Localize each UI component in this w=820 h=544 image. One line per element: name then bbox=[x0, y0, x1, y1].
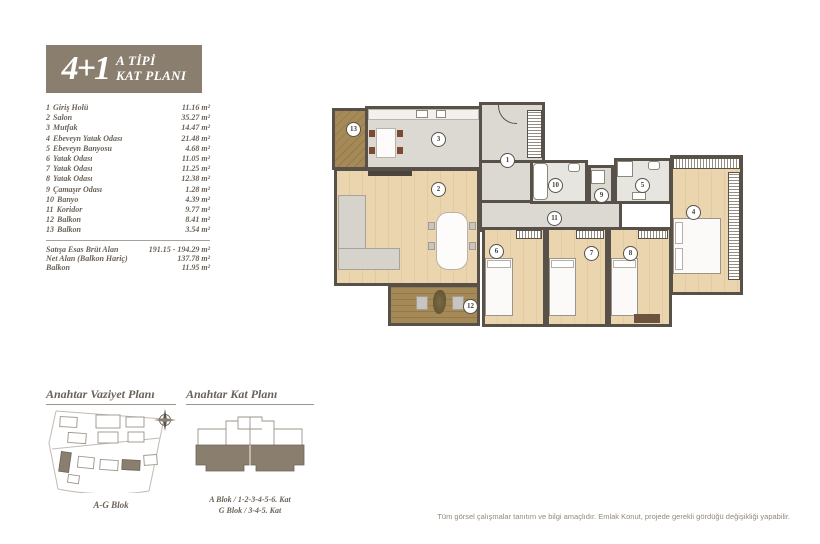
room-label: 13Balkon bbox=[46, 225, 81, 235]
room-area-list: 1Giriş Holü 11.16 m² 2Salon 35.27 m² 3Mu… bbox=[46, 103, 210, 273]
room-number-10: 10 bbox=[548, 178, 563, 193]
room-number-5: 5 bbox=[635, 178, 650, 193]
room-area: 1.28 m² bbox=[185, 185, 210, 195]
floor-plan-caption: A Blok / 1-2-3-4-5-6. Kat G Blok / 3-4-5… bbox=[186, 495, 314, 517]
room-list-row: 4Ebeveyn Yatak Odası 21.48 m² bbox=[46, 134, 210, 144]
room-number-7: 7 bbox=[584, 246, 599, 261]
pillow bbox=[613, 260, 636, 268]
kitchen-chair bbox=[369, 130, 375, 137]
room-area: 4.68 m² bbox=[185, 144, 210, 154]
pillow bbox=[487, 260, 511, 268]
room-area: 3.54 m² bbox=[185, 225, 210, 235]
highlight-block-g bbox=[122, 460, 140, 471]
room-label: 3Mutfak bbox=[46, 123, 77, 133]
floor-plan: 1 2 3 4 5 6 7 8 9 10 11 12 13 bbox=[332, 100, 746, 331]
room-list-row: 12Balkon 8.41 m² bbox=[46, 215, 210, 225]
room-number-2: 2 bbox=[431, 182, 446, 197]
room-label: 9Çamaşır Odası bbox=[46, 185, 102, 195]
plan-title-line2: KAT PLANI bbox=[116, 68, 186, 83]
master-closet-right bbox=[728, 172, 740, 280]
room-number-11: 11 bbox=[547, 211, 562, 226]
site-plan-sketch bbox=[46, 405, 176, 493]
room-list-row: 7Yatak Odası 11.25 m² bbox=[46, 164, 210, 174]
key-site-plan-title: Anahtar Vaziyet Planı bbox=[46, 388, 176, 405]
type-badge: 4+1 A TİPİ KAT PLANI bbox=[46, 45, 202, 93]
room-number-8: 8 bbox=[623, 246, 638, 261]
room-list-row: 1Giriş Holü 11.16 m² bbox=[46, 103, 210, 113]
room-area: 8.41 m² bbox=[185, 215, 210, 225]
room-label: 12Balkon bbox=[46, 215, 81, 225]
room-area: 12.38 m² bbox=[181, 174, 210, 184]
unit-count: 4+1 bbox=[62, 52, 109, 86]
kitchen-chair bbox=[397, 147, 403, 154]
room-area: 9.77 m² bbox=[185, 205, 210, 215]
sofa-chaise bbox=[338, 248, 400, 270]
room-list-row: 5Ebeveyn Banyosu 4.68 m² bbox=[46, 144, 210, 154]
room-number-13: 13 bbox=[346, 122, 361, 137]
area-summary: Satışa Esas Brüt Alan 191.15 - 194.29 m²… bbox=[46, 240, 210, 273]
dining-chair bbox=[469, 242, 476, 250]
balcony-13 bbox=[332, 108, 368, 170]
room-list-row: 10Banyo 4.39 m² bbox=[46, 195, 210, 205]
room-label: 5Ebeveyn Banyosu bbox=[46, 144, 112, 154]
building-footprint-sketch bbox=[190, 413, 310, 487]
room-list-row: 13Balkon 3.54 m² bbox=[46, 225, 210, 235]
summary-label: Net Alan (Balkon Hariç) bbox=[46, 254, 128, 263]
master-closet-top bbox=[673, 158, 740, 169]
room-number-1: 1 bbox=[500, 153, 515, 168]
room-area: 21.48 m² bbox=[181, 134, 210, 144]
summary-label: Balkon bbox=[46, 263, 70, 272]
summary-row: Balkon 11.95 m² bbox=[46, 263, 210, 272]
pillow bbox=[551, 260, 574, 268]
room-area: 35.27 m² bbox=[181, 113, 210, 123]
key-floor-plan: Anahtar Kat Planı A Blok / 1-2-3-4-5-6. … bbox=[186, 388, 314, 517]
room-area: 4.39 m² bbox=[185, 195, 210, 205]
room-label: 1Giriş Holü bbox=[46, 103, 88, 113]
room-list-row: 3Mutfak 14.47 m² bbox=[46, 123, 210, 133]
room-number-4: 4 bbox=[686, 205, 701, 220]
plan-title: A TİPİ KAT PLANI bbox=[116, 54, 186, 84]
closet bbox=[638, 230, 668, 239]
dining-chair bbox=[428, 222, 435, 230]
room-label: 7Yatak Odası bbox=[46, 164, 93, 174]
room-area: 11.05 m² bbox=[182, 154, 210, 164]
site-plan-caption: A-G Blok bbox=[46, 500, 176, 512]
room-list-row: 6Yatak Odası 11.05 m² bbox=[46, 154, 210, 164]
room-number-3: 3 bbox=[431, 132, 446, 147]
compass-icon bbox=[154, 409, 176, 431]
room-number-6: 6 bbox=[489, 244, 504, 259]
plan-title-line1: A TİPİ bbox=[116, 53, 156, 68]
bathtub bbox=[533, 163, 548, 200]
closet bbox=[516, 230, 542, 239]
summary-label: Satışa Esas Brüt Alan bbox=[46, 245, 118, 254]
room-list-row: 9Çamaşır Odası 1.28 m² bbox=[46, 185, 210, 195]
room-label: 10Banyo bbox=[46, 195, 78, 205]
summary-value: 191.15 - 194.29 m² bbox=[149, 245, 210, 254]
toilet bbox=[648, 161, 660, 170]
key-site-plan: Anahtar Vaziyet Planı bbox=[46, 388, 176, 512]
dining-chair bbox=[469, 222, 476, 230]
balcony-chair bbox=[416, 296, 428, 310]
disclaimer-text: Tüm görsel çalışmalar tanıtım ve bilgi a… bbox=[380, 512, 790, 521]
dining-chair bbox=[428, 242, 435, 250]
summary-value: 137.78 m² bbox=[177, 254, 210, 263]
shower bbox=[617, 161, 633, 177]
washbasin bbox=[632, 192, 646, 200]
summary-value: 11.95 m² bbox=[182, 263, 210, 272]
room-area: 14.47 m² bbox=[181, 123, 210, 133]
room-label: 11Koridor bbox=[46, 205, 82, 215]
summary-row: Satışa Esas Brüt Alan 191.15 - 194.29 m² bbox=[46, 245, 210, 254]
pillow bbox=[675, 248, 683, 270]
summary-row: Net Alan (Balkon Hariç) 137.78 m² bbox=[46, 254, 210, 263]
room-label: 6Yatak Odası bbox=[46, 154, 93, 164]
dining-table bbox=[436, 212, 468, 270]
stove-icon bbox=[416, 110, 428, 118]
desk bbox=[634, 314, 660, 323]
room-label: 8Yatak Odası bbox=[46, 174, 93, 184]
caption-block-a: A Blok / 1-2-3-4-5-6. Kat bbox=[209, 495, 291, 504]
sink-icon bbox=[436, 110, 446, 118]
tv-unit bbox=[368, 171, 412, 176]
brochure-page: 4+1 A TİPİ KAT PLANI 1Giriş Holü 11.16 m… bbox=[0, 0, 820, 544]
room-list-row: 8Yatak Odası 12.38 m² bbox=[46, 174, 210, 184]
room-list-row: 11Koridor 9.77 m² bbox=[46, 205, 210, 215]
room-number-12: 12 bbox=[463, 299, 478, 314]
kitchen-chair bbox=[397, 130, 403, 137]
washing-machine bbox=[591, 170, 605, 184]
toilet bbox=[568, 163, 580, 172]
entry-wardrobe bbox=[527, 110, 542, 158]
room-area: 11.16 m² bbox=[182, 103, 210, 113]
room-number-9: 9 bbox=[594, 188, 609, 203]
key-floor-plan-title: Anahtar Kat Planı bbox=[186, 388, 314, 405]
pillow bbox=[675, 222, 683, 244]
closet bbox=[576, 230, 604, 239]
room-list-items: 1Giriş Holü 11.16 m² 2Salon 35.27 m² 3Mu… bbox=[46, 103, 210, 236]
room-area: 11.25 m² bbox=[182, 164, 210, 174]
room-label: 2Salon bbox=[46, 113, 72, 123]
room-label: 4Ebeveyn Yatak Odası bbox=[46, 134, 122, 144]
highlight-block-a bbox=[59, 451, 72, 472]
kitchen-table bbox=[376, 128, 396, 158]
room-list-row: 2Salon 35.27 m² bbox=[46, 113, 210, 123]
caption-block-g: G Blok / 3-4-5. Kat bbox=[219, 506, 281, 515]
kitchen-chair bbox=[369, 147, 375, 154]
